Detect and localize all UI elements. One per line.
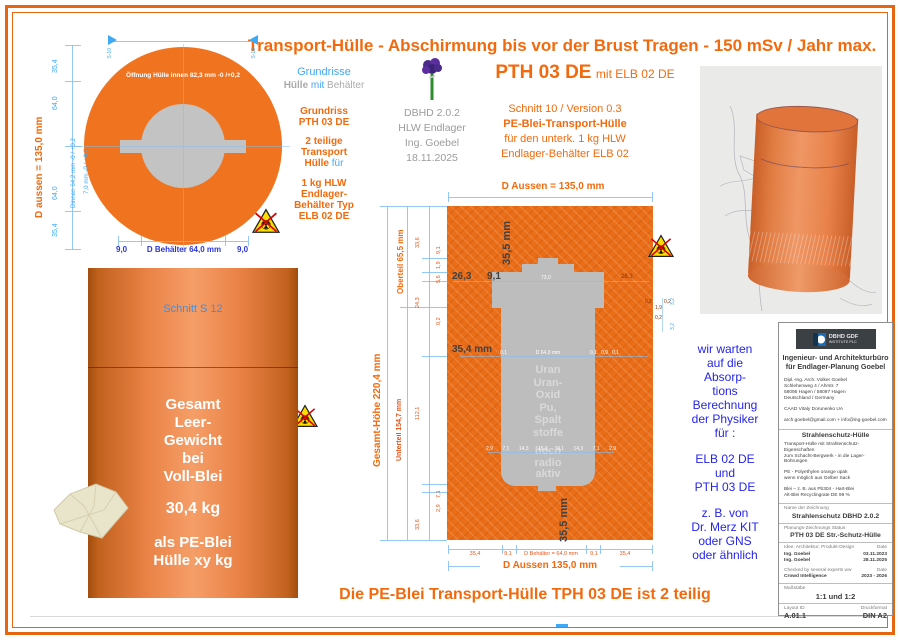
tb-format-value: DIN A2 bbox=[863, 613, 887, 620]
wait-line: Berechnung bbox=[658, 398, 792, 412]
lower-dim: 15,3 bbox=[538, 446, 548, 452]
section-oberteil-label: Oberteil 65,5 mm bbox=[396, 224, 405, 300]
legend-behaelter: Behälter bbox=[327, 80, 364, 91]
tick bbox=[448, 545, 449, 554]
waiting-note-2: ELB 02 DE und PTH 03 DE bbox=[658, 452, 792, 494]
grundriss-note-1: Grundriss PTH 03 DE bbox=[284, 106, 364, 128]
schnitt-note: Schnitt 10 / Version 0.3 PE-Blei-Transpo… bbox=[465, 102, 665, 162]
cyl-line: Hülle xy kg bbox=[110, 552, 276, 570]
wait-line: PTH 03 DE bbox=[658, 480, 792, 494]
plan-tick bbox=[248, 236, 249, 246]
section-dim-line bbox=[488, 452, 614, 453]
plan-dim-354-bot: 35,4 bbox=[52, 213, 59, 247]
container-nub bbox=[538, 482, 556, 491]
footer-note: Die PE-Blei Transport-Hülle TPH 03 DE is… bbox=[290, 586, 760, 604]
plan-dinnen-label: Dinnen 64,2 mm -0 / +0,2 bbox=[70, 92, 77, 208]
note-line: Endlager- bbox=[284, 189, 364, 200]
waiting-note-3: z. B. von Dr. Merz KIT oder GNS oder ähn… bbox=[658, 506, 792, 562]
tick bbox=[662, 298, 663, 332]
wait-line: oder GNS bbox=[658, 534, 792, 548]
section-dim-355-bottom: 35,5 mm bbox=[558, 492, 570, 542]
chain-line bbox=[387, 206, 388, 540]
plan-centerline-v bbox=[183, 44, 184, 252]
schnitt-note-line: Endlager-Behälter ELB 02 bbox=[465, 147, 665, 162]
lower-dim: 14,3 bbox=[519, 446, 529, 452]
cyl-line: Gesamt bbox=[110, 396, 276, 414]
chain-tick bbox=[422, 492, 447, 493]
note-line: Hülle für bbox=[284, 158, 364, 169]
mid-dim-1: 0,1 bbox=[500, 350, 507, 356]
plan-dim-354-top: 35,4 bbox=[52, 50, 59, 82]
pth-subtitle: mit ELB 02 DE bbox=[596, 67, 675, 81]
chain-a4: 33,6 bbox=[415, 506, 421, 530]
grundriss-note-3: 1 kg HLW Endlager- Behälter Typ ELB 02 D… bbox=[284, 178, 364, 222]
plan-b-left: 9,0 bbox=[116, 245, 127, 254]
chain-b3: 5,6 bbox=[436, 270, 442, 283]
tb-check-period: 2023 - 2026 bbox=[861, 574, 887, 581]
company-logo: DBHD GDF INSTITUTE PLC bbox=[796, 329, 876, 349]
pth-heading: PTH 03 DE mit ELB 02 DE bbox=[460, 62, 710, 84]
content-line: aktiv bbox=[501, 469, 595, 481]
lower-dim: 2,9 bbox=[486, 446, 493, 452]
cylinder-schnitt-label: Schnitt S 12 bbox=[130, 303, 256, 315]
wait-line: der Physiker bbox=[658, 412, 792, 426]
chain-b6: 2,9 bbox=[436, 499, 442, 512]
plan-tick bbox=[141, 236, 142, 246]
lower-dim: 2,9 bbox=[609, 446, 616, 452]
section-marker-s10-icon bbox=[108, 35, 117, 45]
logo-icon bbox=[813, 333, 826, 346]
chain-tick bbox=[422, 272, 447, 273]
legend-line2: Hülle mit Behälter bbox=[272, 80, 376, 91]
lower-dim: 14,3 bbox=[573, 446, 583, 452]
tb-p: Transport-Hülle mit Strahlenschutz-Eigen… bbox=[784, 442, 887, 454]
title-block: DBHD GDF INSTITUTE PLC Ingenieur- und Ar… bbox=[778, 322, 893, 616]
rc-2: 1,9 bbox=[655, 305, 662, 311]
tick bbox=[448, 561, 449, 571]
wait-line: Dr. Merz KIT bbox=[658, 520, 792, 534]
wait-line: für : bbox=[658, 426, 792, 440]
meta-version: DBHD 2.0.2 bbox=[388, 106, 476, 121]
wait-line: auf die bbox=[658, 356, 792, 370]
schnitt-note-line: für den unterk. 1 kg HLW bbox=[465, 132, 665, 147]
lower-dim: 7,1 bbox=[502, 446, 509, 452]
section-dim-354: 35,4 mm bbox=[452, 344, 492, 355]
wait-line: Absorp- bbox=[658, 370, 792, 384]
note-line: ELB 02 DE bbox=[284, 211, 364, 222]
chain-b2: 1,9 bbox=[436, 256, 442, 269]
plan-bottom-dim-line bbox=[118, 241, 248, 242]
logo-text-2: INSTITUTE PLC bbox=[829, 340, 859, 344]
tick bbox=[652, 192, 653, 202]
firm-name: Ingenieur- und Architekturbüro für Endla… bbox=[779, 353, 892, 371]
chain-b5: 7,1 bbox=[436, 485, 442, 498]
content-line: stoffe bbox=[501, 427, 595, 440]
section-dim-line bbox=[460, 356, 648, 357]
cyl-line: Gewicht bbox=[110, 432, 276, 450]
mid-dim-2: D 64,0 mm bbox=[520, 350, 576, 356]
render-cylinder-band bbox=[749, 231, 852, 266]
render-cylinder bbox=[747, 103, 859, 294]
plan-tick bbox=[65, 249, 81, 250]
section-unterteil-label: Unterteil 154,7 mm bbox=[396, 382, 403, 478]
firm-address: Dipl.-Ing. Arch. Volker Goebel Schlehenw… bbox=[779, 375, 892, 427]
tb-layout-value: A.01.1 bbox=[784, 613, 806, 620]
bottom-row-4: 9,1 bbox=[584, 551, 604, 557]
note-line: 2 teilige bbox=[284, 136, 364, 147]
pth-title: PTH 03 DE bbox=[495, 62, 591, 83]
wait-line: z. B. von bbox=[658, 506, 792, 520]
note-huelle: Hülle bbox=[305, 158, 329, 169]
chain-tick bbox=[422, 356, 447, 357]
chain-a3: 112,1 bbox=[415, 394, 421, 420]
grundriss-note-2: 2 teilige Transport Hülle für bbox=[284, 136, 364, 169]
waiting-note-1: wir warten auf die Absorp- tions Berechn… bbox=[658, 342, 792, 440]
section-dim-355-top: 35,5 mm bbox=[501, 211, 513, 265]
meta-date: 18.11.2025 bbox=[388, 151, 476, 166]
drawing-sheet: { "colors":{"accent_orange":"#f26a0d","d… bbox=[0, 0, 900, 640]
chain-tick bbox=[422, 258, 447, 259]
chain-tick bbox=[400, 307, 447, 308]
rc-6: 3,2 bbox=[670, 318, 676, 330]
chain-tick bbox=[380, 540, 447, 541]
note-fuer: für bbox=[329, 158, 343, 169]
page-title: Transport-Hülle - Abschirmung bis vor de… bbox=[240, 36, 884, 56]
bottom-row-1: 35,4 bbox=[462, 551, 488, 557]
wait-line: tions bbox=[658, 384, 792, 398]
plan-b-center: D Behälter 64,0 mm bbox=[145, 245, 223, 254]
wait-line: ELB 02 DE bbox=[658, 452, 792, 466]
section-marker-s12-label: S-12 bbox=[251, 48, 257, 59]
section-marker-s12-icon bbox=[249, 35, 258, 45]
plan-tick bbox=[65, 81, 81, 82]
legend-huelle: Hülle bbox=[284, 80, 308, 91]
flower-icon bbox=[420, 56, 444, 102]
plan-tick bbox=[65, 45, 81, 46]
section-dim-263l: 26,3 bbox=[452, 271, 471, 282]
addr-line: arch.goebel@gmail.com + info@ing-goebel.… bbox=[784, 418, 887, 424]
margin-mark bbox=[556, 624, 568, 627]
section-marker-s10-label: S-10 bbox=[107, 48, 113, 59]
tb-scale-value: 1:1 und 1:2 bbox=[784, 592, 887, 601]
meta-author: Ing. Goebel bbox=[388, 136, 476, 151]
glove-icon bbox=[50, 466, 142, 552]
section-dim-91: 9,1 bbox=[487, 271, 501, 282]
radiation-warning-icon: ☢ bbox=[648, 234, 674, 258]
cylinder-parting-line bbox=[88, 367, 298, 368]
tb-date: 28.11.2025 bbox=[863, 558, 887, 565]
mid-dim-5: 0,1 bbox=[612, 350, 619, 356]
note-line: 1 kg HLW bbox=[284, 178, 364, 189]
lower-dim: 7,1 bbox=[593, 446, 600, 452]
chain-line bbox=[407, 206, 408, 540]
note-line: Transport bbox=[284, 147, 364, 158]
legend-grundrisse: Grundrisse bbox=[286, 66, 362, 78]
schnitt-note-line: PE-Blei-Transport-Hülle bbox=[465, 117, 665, 132]
mid-dim-3: 0,1 bbox=[590, 350, 597, 356]
section-dim-263r: 26,3 bbox=[621, 274, 633, 280]
plan-b-right: 9,0 bbox=[237, 245, 248, 254]
legend-mit: mit bbox=[311, 80, 324, 91]
rc-5: 3,2 bbox=[670, 293, 676, 305]
tb-name-value: Strahlenschutz DBHD 2.0.2 bbox=[784, 513, 887, 520]
content-line: Spalt bbox=[501, 414, 595, 427]
plan-7mm-label: 7,0 mm -0 / +0,2 bbox=[83, 108, 90, 194]
tick bbox=[652, 561, 653, 571]
content-line: Oxid bbox=[501, 389, 595, 402]
meta-block: DBHD 2.0.2 HLW Endlager Ing. Goebel 18.1… bbox=[388, 106, 476, 166]
chain-tick bbox=[422, 281, 447, 282]
tb-section-title: Strahlenschutz-Hülle bbox=[779, 432, 892, 439]
plan-dim-640-top: 64,0 bbox=[52, 86, 59, 120]
wait-line: und bbox=[658, 466, 792, 480]
section-top-dim-line bbox=[448, 197, 652, 198]
bottom-row-2: 9,1 bbox=[498, 551, 518, 557]
section-dim-line bbox=[452, 281, 650, 282]
mid-dim-4: 0,9 bbox=[601, 350, 608, 356]
bottom-dim-line-1 bbox=[448, 549, 652, 550]
radiation-warning-icon: ☢ bbox=[252, 208, 280, 234]
plan-dim-640-bot: 64,0 bbox=[52, 176, 59, 210]
note-line: Grundriss bbox=[284, 106, 364, 117]
note-line: PTH 03 DE bbox=[284, 117, 364, 128]
chain-tick bbox=[422, 484, 447, 485]
section-d-aussen-bottom: D Aussen 135,0 mm bbox=[480, 560, 620, 571]
tb-status-value: PTH 03 DE Str.-Schutz-Hülle bbox=[784, 532, 887, 539]
firm-line: für Endlager-Planung Goebel bbox=[779, 362, 892, 371]
tb-p: Alt-Blei Recyclingrate DE 99 % bbox=[784, 493, 887, 499]
wait-line: oder ähnlich bbox=[658, 548, 792, 562]
firm-line: Ingenieur- und Architekturbüro bbox=[779, 353, 892, 362]
plan-d-aussen-label: D aussen = 135,0 mm bbox=[34, 98, 45, 218]
note-line: Behälter Typ bbox=[284, 200, 364, 211]
bottom-row-3: D Behälter = 64,0 mm bbox=[516, 551, 586, 557]
tick bbox=[448, 192, 449, 202]
schnitt-note-line: Schnitt 10 / Version 0.3 bbox=[465, 102, 665, 117]
plan-tick bbox=[65, 211, 81, 212]
chain-b1: 9,1 bbox=[436, 238, 442, 254]
content-line: Uran- bbox=[501, 377, 595, 390]
bottom-row-5: 35,4 bbox=[612, 551, 638, 557]
tb-p: zum Schacht-Bergwerk - in die Lager-Bohr… bbox=[784, 454, 887, 466]
chain-b4: 0,2 bbox=[436, 312, 442, 325]
chain-line bbox=[429, 206, 430, 540]
tb-checker: Crowd Intelligence bbox=[784, 574, 827, 581]
chain-a1: 33,6 bbox=[415, 224, 421, 248]
tb-designer: Ing. Goebel bbox=[784, 558, 810, 565]
lower-dims: 2,9 7,1 14,3 15,3 0,1 14,3 7,1 2,9 bbox=[486, 446, 616, 452]
chain-tick bbox=[380, 206, 447, 207]
container-content-1: Uran Uran- Oxid Pu, Spalt stoffe bbox=[501, 364, 595, 439]
sheet-bottom-line bbox=[30, 616, 875, 617]
meta-project: HLW Endlager bbox=[388, 121, 476, 136]
section-dim-730: 73,0 bbox=[541, 275, 551, 281]
rc-4: 0,2 bbox=[655, 315, 662, 321]
tick bbox=[652, 545, 653, 554]
wait-line: wir warten bbox=[658, 342, 792, 356]
plan-tick bbox=[225, 236, 226, 246]
lower-dim: 0,1 bbox=[557, 446, 564, 452]
rc-1: 0,2 bbox=[645, 299, 652, 305]
section-gesamt-label: Gesamt-Höhe 220,4 mm bbox=[372, 330, 383, 490]
cyl-line: Leer- bbox=[110, 414, 276, 432]
chain-a2: 24,3 bbox=[415, 284, 421, 308]
plan-top-dim-line bbox=[112, 41, 258, 42]
section-d-aussen-top: D Aussen = 135,0 mm bbox=[460, 181, 646, 192]
tb-paragraphs: Transport-Hülle mit Strahlenschutz-Eigen… bbox=[779, 439, 892, 501]
content-line: Pu, bbox=[501, 402, 595, 415]
content-line: Uran bbox=[501, 364, 595, 377]
